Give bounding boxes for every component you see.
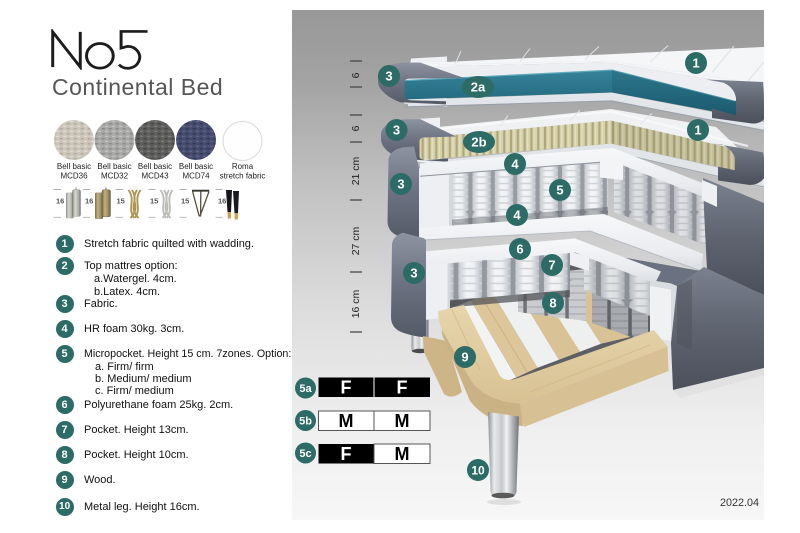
svg-text:3: 3 (393, 123, 400, 138)
svg-text:M: M (395, 444, 410, 464)
svg-text:2a: 2a (471, 80, 486, 95)
svg-text:15: 15 (150, 197, 158, 206)
svg-text:2b: 2b (471, 135, 486, 150)
svg-text:5b: 5b (299, 416, 312, 428)
svg-text:F: F (341, 378, 352, 398)
svg-text:6: 6 (350, 72, 362, 78)
svg-text:5: 5 (556, 183, 563, 198)
svg-text:Bell basic: Bell basic (57, 162, 91, 171)
svg-text:2022.04: 2022.04 (720, 497, 759, 509)
svg-text:16 cm: 16 cm (350, 289, 362, 318)
svg-text:3: 3 (397, 177, 404, 192)
svg-text:MCD32: MCD32 (101, 172, 129, 181)
svg-text:4: 4 (513, 208, 521, 223)
svg-text:MCD36: MCD36 (60, 172, 88, 181)
svg-text:Bell basic: Bell basic (138, 162, 172, 171)
svg-text:16: 16 (85, 197, 93, 206)
svg-text:1: 1 (694, 123, 701, 138)
svg-text:15: 15 (117, 197, 125, 206)
svg-text:stretch fabric: stretch fabric (220, 172, 266, 181)
svg-text:5c: 5c (299, 448, 311, 460)
svg-text:M: M (339, 411, 354, 431)
svg-text:Bell basic: Bell basic (97, 162, 131, 171)
svg-text:9: 9 (461, 350, 468, 365)
svg-text:Bell basic: Bell basic (179, 162, 213, 171)
svg-text:10: 10 (471, 464, 485, 478)
svg-text:F: F (397, 378, 408, 398)
svg-text:7: 7 (548, 258, 555, 273)
svg-text:4: 4 (511, 157, 519, 172)
svg-text:Roma: Roma (232, 162, 254, 171)
svg-text:16: 16 (56, 197, 64, 206)
svg-text:3: 3 (410, 266, 417, 281)
svg-text:MCD43: MCD43 (141, 172, 169, 181)
svg-text:F: F (341, 444, 352, 464)
svg-text:5a: 5a (299, 383, 312, 395)
svg-text:M: M (395, 411, 410, 431)
svg-text:6: 6 (350, 125, 362, 131)
svg-text:1: 1 (692, 56, 699, 71)
svg-text:3: 3 (385, 69, 392, 84)
svg-text:16: 16 (218, 197, 226, 206)
svg-text:27 cm: 27 cm (350, 226, 362, 255)
svg-text:21 cm: 21 cm (350, 156, 362, 185)
svg-text:15: 15 (181, 197, 189, 206)
svg-text:MCD74: MCD74 (182, 172, 210, 181)
svg-text:6: 6 (516, 242, 523, 257)
svg-text:8: 8 (549, 296, 556, 311)
